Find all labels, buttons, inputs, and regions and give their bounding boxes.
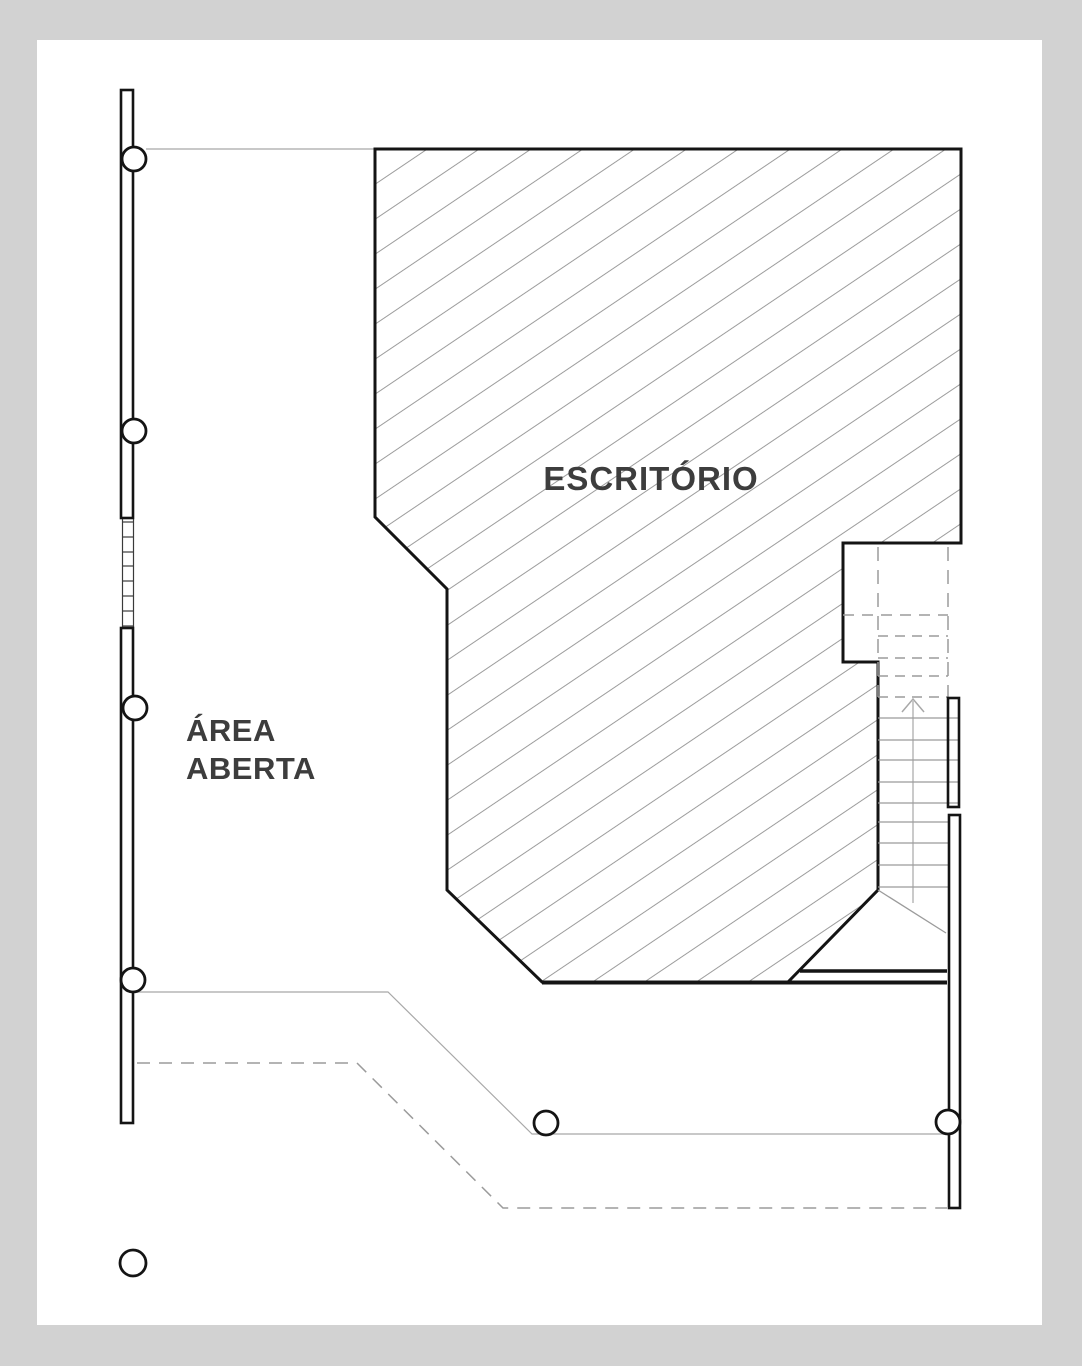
floor-plan-drawing: ESCRITÓRIO ÁREA ABERTA — [0, 0, 1082, 1366]
open-area-label-line1: ÁREA — [186, 713, 276, 748]
column-2 — [122, 419, 146, 443]
column-5 — [534, 1111, 558, 1135]
column-4 — [121, 968, 145, 992]
column-1 — [122, 147, 146, 171]
column-3 — [123, 696, 147, 720]
column-7 — [120, 1250, 146, 1276]
office-label: ESCRITÓRIO — [543, 460, 758, 497]
open-area-label-line2: ABERTA — [186, 751, 316, 786]
column-6 — [936, 1110, 960, 1134]
